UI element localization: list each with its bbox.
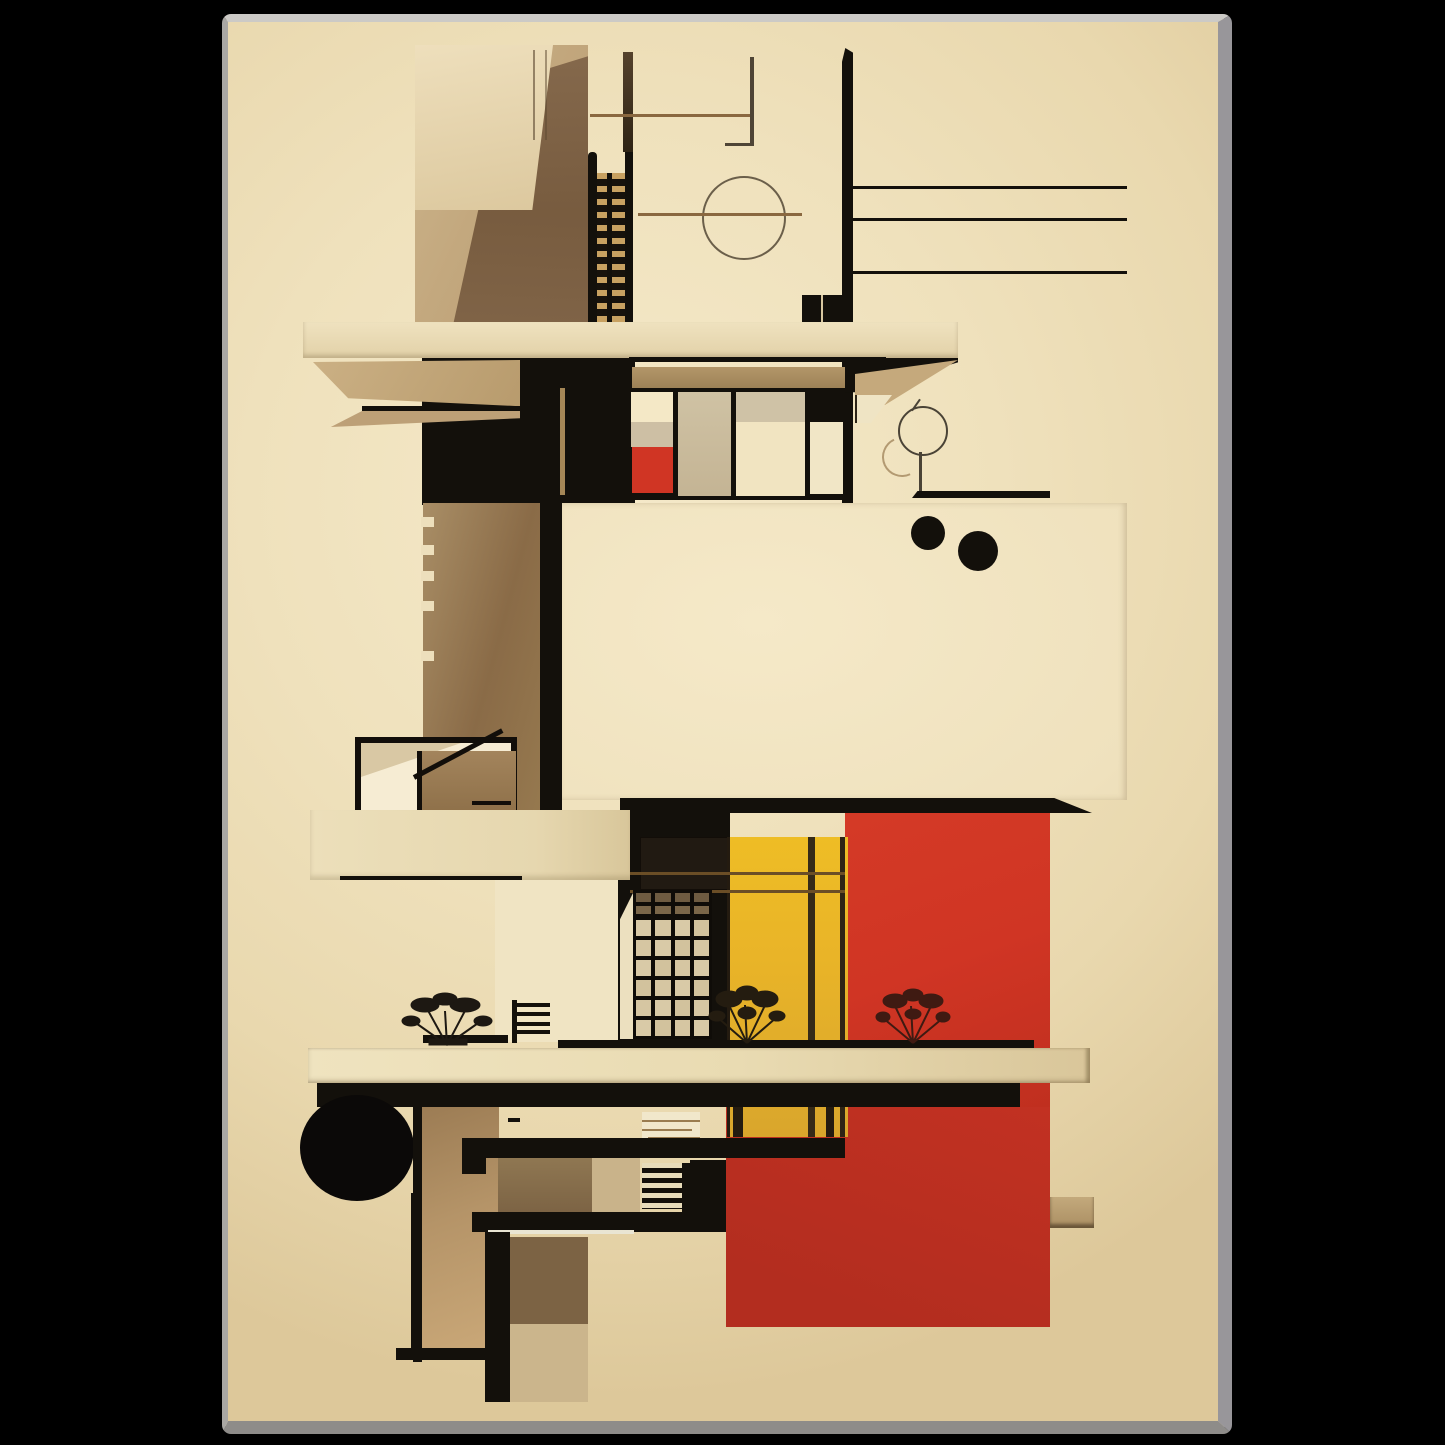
window-pane-1-top (631, 392, 673, 422)
horizontal-rule-2 (853, 218, 1127, 221)
pier-notch (421, 545, 434, 555)
tally-dash (517, 1030, 550, 1034)
stair-ladder-mullion (607, 173, 612, 325)
window-pane-3-top (736, 392, 805, 422)
art-poster-print (222, 14, 1232, 1434)
leg-interior-tan (510, 1324, 588, 1402)
pier-notch (421, 601, 434, 611)
rule-line-horizontal (590, 114, 753, 117)
tan-panel-left-border (411, 1193, 416, 1360)
tally-dash (517, 1022, 550, 1026)
table-interior-light (592, 1158, 640, 1214)
tally-dash (517, 1003, 550, 1007)
stray-dash (508, 1100, 523, 1105)
shelf-shadow-band (317, 1083, 1020, 1107)
table-leg (485, 1232, 510, 1402)
window-pane-1-mid (631, 422, 673, 447)
pier-notch (421, 651, 434, 661)
yellow-lower-mullion (733, 1107, 743, 1137)
stair-column-left-rail (588, 152, 597, 325)
table-top-bar (472, 1138, 845, 1158)
beam-slit-line (560, 388, 565, 495)
horizontal-rule-1 (853, 186, 1127, 189)
pier-black-band (540, 503, 562, 812)
dark-post (623, 52, 633, 152)
plant-silhouette-middle (705, 983, 789, 1043)
window-pane-3-bottom (736, 422, 805, 496)
tan-panel-bottom-bar (396, 1348, 499, 1360)
black-sphere (300, 1095, 414, 1201)
flag-underline (362, 406, 520, 411)
grid-window (633, 917, 712, 1039)
table-mid-bar-extension (634, 1212, 726, 1232)
diagonal-ledge-panes (855, 395, 892, 423)
table-left-block (462, 1138, 486, 1174)
right-ledge (1050, 1197, 1094, 1228)
tower-antenna-line (533, 50, 535, 140)
yellow-lower-mullion (826, 1107, 834, 1137)
window-pane-red (632, 447, 673, 493)
plant-silhouette-left (395, 991, 499, 1045)
grid-window-header (633, 890, 712, 917)
horizontal-rule-3 (853, 271, 1127, 274)
large-cream-block (562, 503, 1127, 800)
brick-line (642, 1129, 692, 1131)
table-connector (690, 1160, 726, 1214)
rule-line-vertical (750, 57, 754, 146)
pier-notch (421, 571, 434, 581)
artwork-canvas (228, 22, 1218, 1421)
dark-upper-window (640, 837, 730, 890)
black-dot-large (958, 531, 998, 571)
plant-silhouette-right (872, 986, 954, 1043)
twin-squares-gap (821, 295, 823, 322)
stray-dash (508, 1118, 520, 1122)
stair-column-right-rail (625, 138, 633, 325)
rule-line-through-circle (638, 213, 802, 216)
brick-line (642, 1120, 700, 1122)
black-dot-small (911, 516, 945, 550)
long-shelf-slab (308, 1048, 1090, 1083)
page-background (0, 0, 1445, 1445)
tower-antenna-line (545, 50, 547, 140)
pier-notch (421, 517, 434, 527)
short-top-bar (912, 491, 1050, 498)
tally-dash (517, 1012, 550, 1016)
ladder-stripe-block (642, 1163, 682, 1209)
rule-line-foot (725, 143, 754, 146)
circle-outline (702, 176, 786, 260)
window-pane-4 (810, 422, 843, 494)
mid-shelf-band (310, 810, 632, 880)
window-pane-2 (678, 392, 731, 496)
leg-interior-brown (510, 1237, 588, 1324)
transom-line-upper (630, 872, 845, 875)
upper-shelf-slab (303, 322, 958, 358)
table-mid-bar (472, 1212, 638, 1232)
stair-box-step-line (472, 801, 511, 805)
